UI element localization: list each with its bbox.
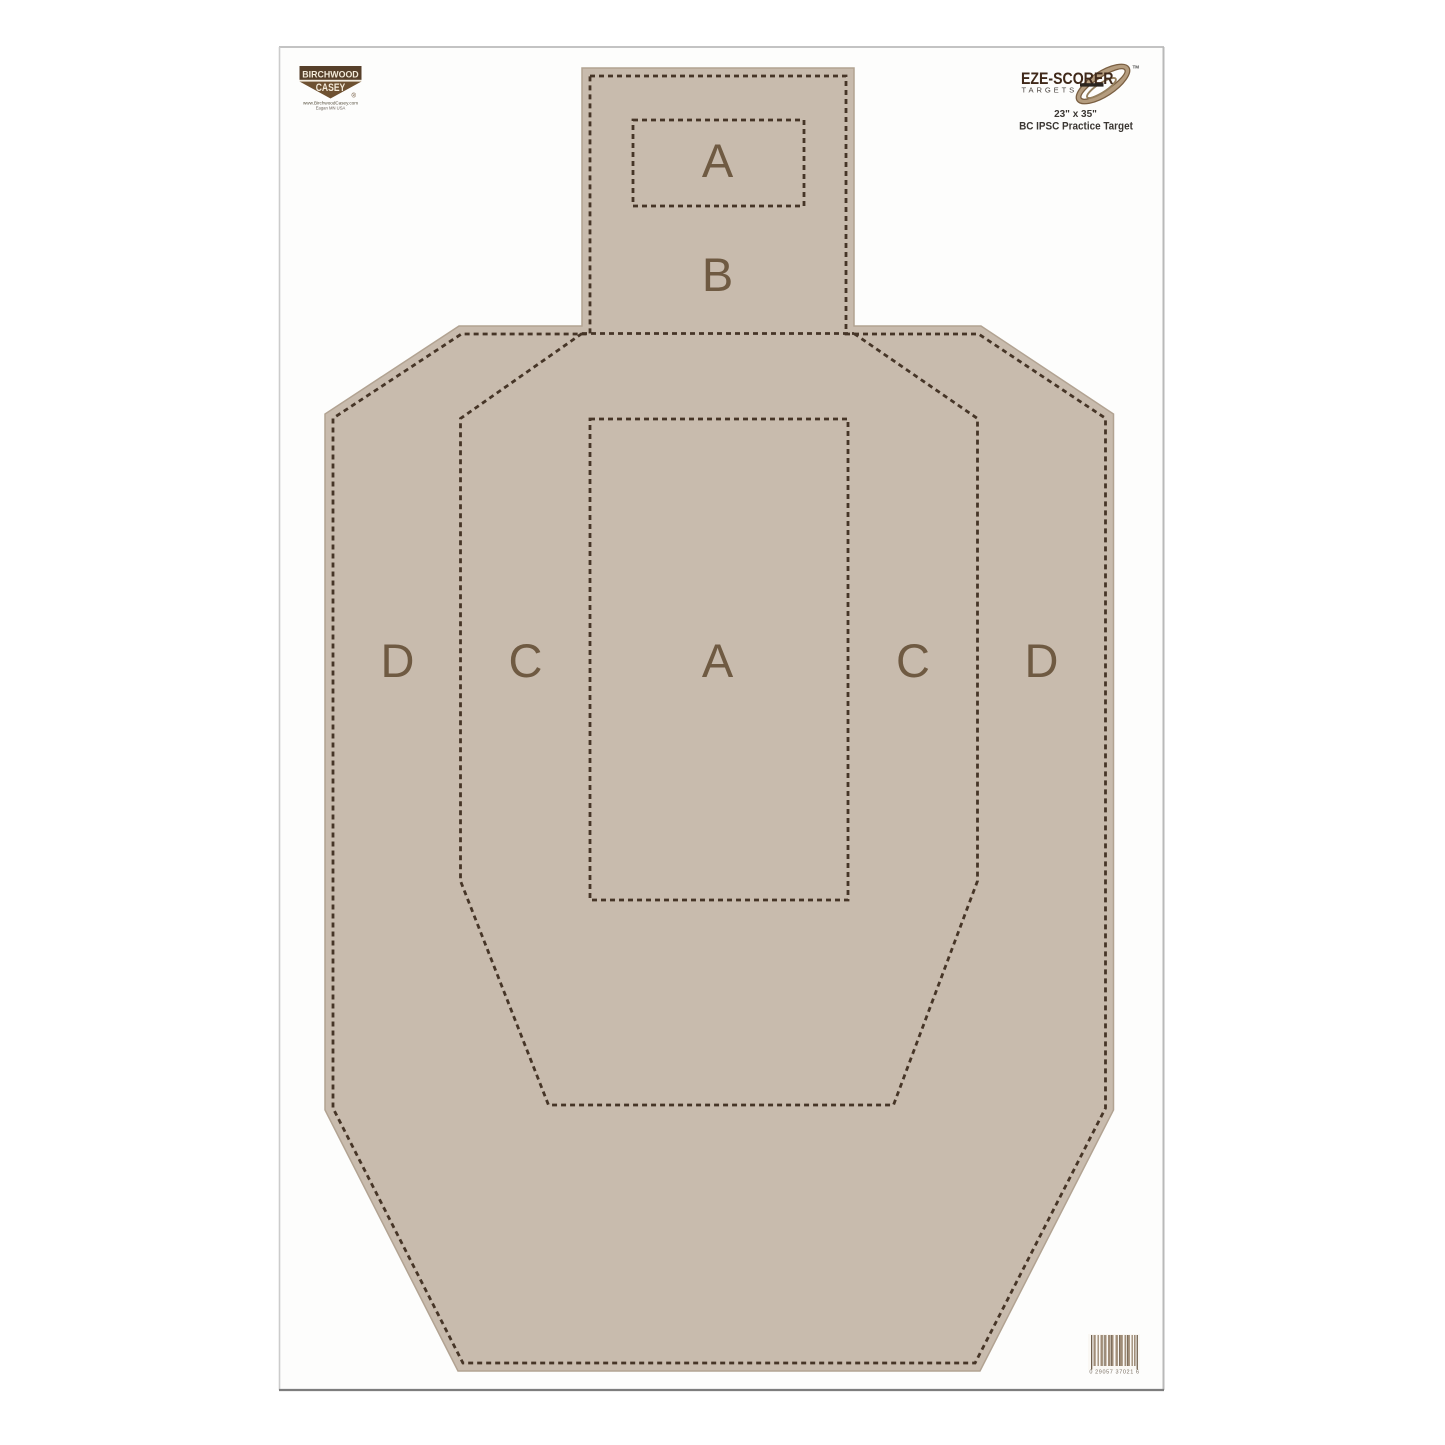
svg-text:D: D: [381, 634, 415, 687]
svg-text:TARGETS: TARGETS: [1022, 86, 1078, 95]
svg-text:C: C: [896, 634, 930, 687]
svg-text:CASEY: CASEY: [316, 82, 346, 94]
svg-text:D: D: [1025, 634, 1059, 687]
svg-text:BC IPSC Practice Target: BC IPSC Practice Target: [1019, 120, 1133, 133]
svg-text:®: ®: [352, 93, 357, 100]
svg-text:BIRCHWOOD: BIRCHWOOD: [302, 69, 359, 79]
svg-text:Eagan MN USA: Eagan MN USA: [316, 106, 346, 111]
svg-text:23" x 35": 23" x 35": [1054, 109, 1097, 120]
svg-text:A: A: [702, 134, 734, 187]
svg-text:C: C: [509, 634, 543, 687]
svg-text:0 29057 37021 6: 0 29057 37021 6: [1089, 1370, 1139, 1376]
svg-text:A: A: [702, 634, 734, 687]
svg-text:B: B: [702, 248, 733, 301]
svg-text:TM: TM: [1133, 65, 1140, 70]
